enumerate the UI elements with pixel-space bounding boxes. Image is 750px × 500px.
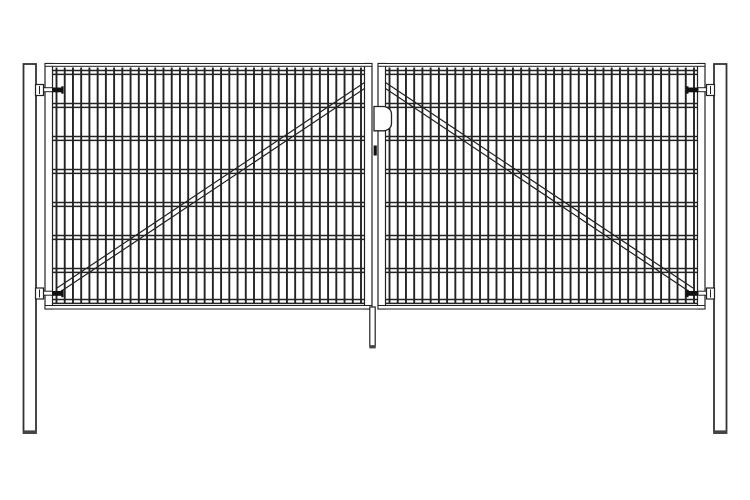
frame-top-rail (45, 64, 372, 67)
frame-vertical-tube (698, 64, 706, 310)
left-post-base-cap (23, 430, 37, 433)
left-post-body (24, 64, 37, 433)
frame-bottom-rail (378, 306, 705, 310)
drop-rod (370, 307, 375, 346)
hinge-strap-clamp (686, 290, 688, 297)
frame-bottom-rail (45, 306, 372, 310)
drop-rod-foot-cap (369, 345, 375, 348)
hinge-arm (44, 88, 53, 92)
right-post (714, 64, 728, 433)
drawing-canvas (0, 0, 750, 500)
hinge-arm (698, 88, 707, 92)
right-post-base-cap (714, 430, 728, 433)
hinge-arm (698, 291, 707, 295)
left-post (23, 64, 37, 433)
frame-vertical-tube (45, 64, 53, 310)
latch-drop-bolt-handle (374, 146, 377, 156)
frame-vertical-tube (365, 64, 373, 310)
hinge-arm (44, 291, 53, 295)
hinge-strap-clamp (61, 86, 63, 93)
gate-drawing-svg (0, 0, 750, 500)
frame-vertical-tube (378, 64, 386, 310)
right-post-body (714, 64, 727, 433)
frame-top-rail (378, 64, 705, 67)
drop-rod-assembly (369, 307, 375, 348)
hinge-strap-clamp (686, 86, 688, 93)
hinge-strap-clamp (61, 290, 63, 297)
latch-plate (374, 107, 392, 131)
